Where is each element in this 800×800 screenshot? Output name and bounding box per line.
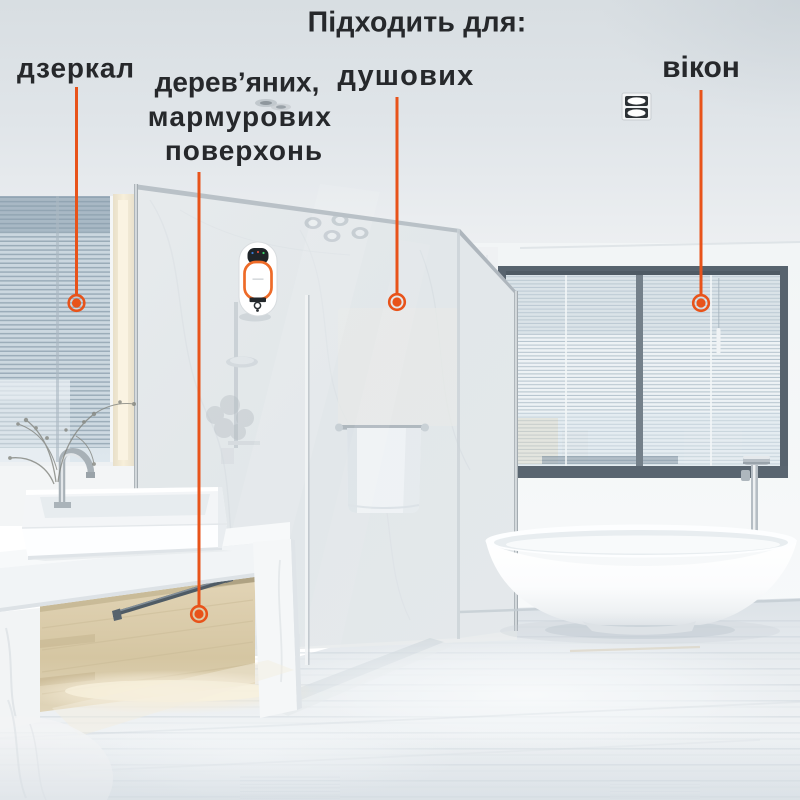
svg-text:мармурових: мармурових: [148, 101, 332, 132]
svg-text:дзеркал: дзеркал: [17, 53, 135, 84]
svg-text:вікон: вікон: [662, 51, 740, 84]
svg-text:деревʼяних,: деревʼяних,: [155, 67, 320, 98]
svg-text:душових: душових: [338, 60, 475, 92]
svg-text:Підходить для:: Підходить для:: [308, 7, 527, 39]
svg-text:поверхонь: поверхонь: [165, 135, 323, 166]
